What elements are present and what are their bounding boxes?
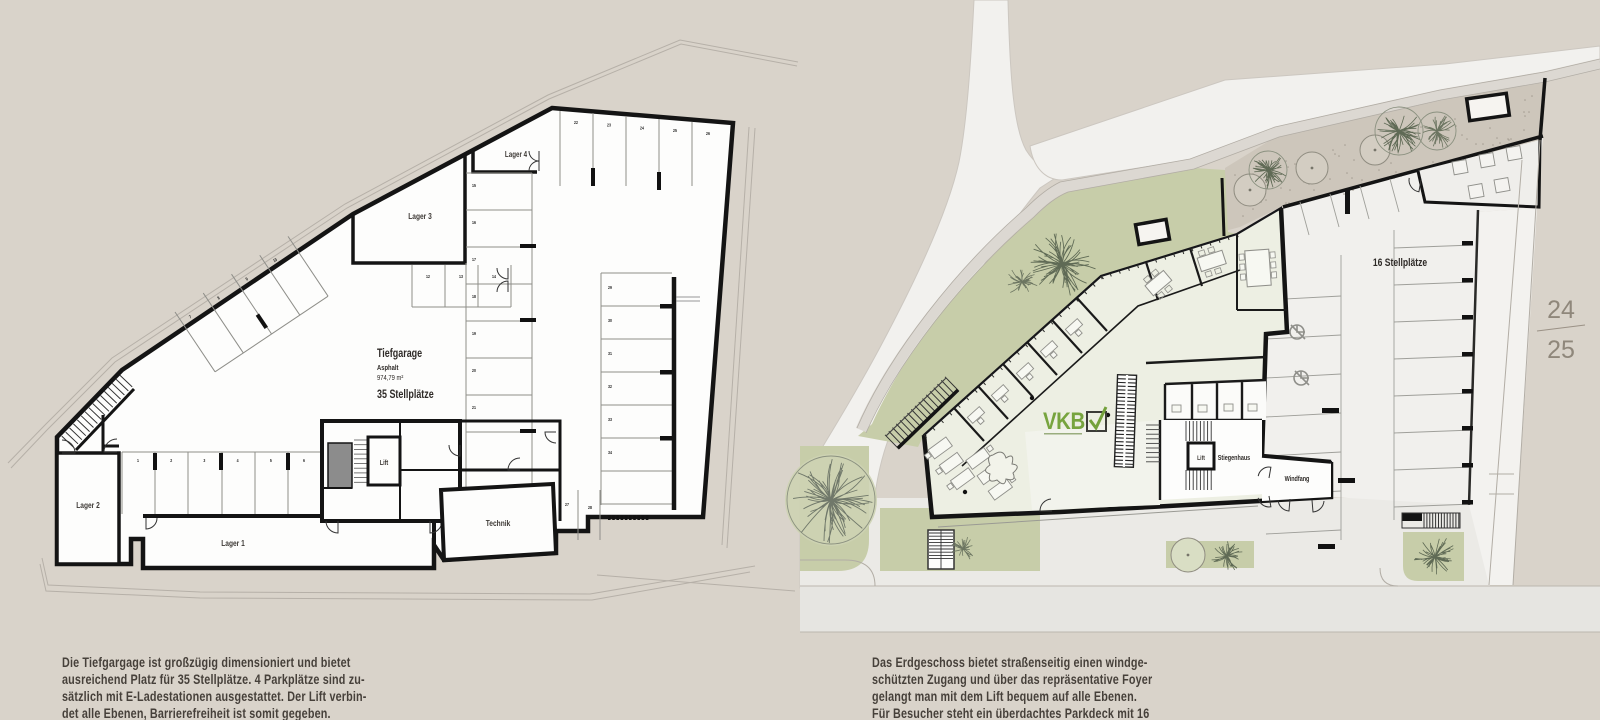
svg-text:Lager 3: Lager 3 xyxy=(408,211,432,221)
svg-text:Für Besucher steht ein überdac: Für Besucher steht ein überdachtes Parkd… xyxy=(872,706,1149,720)
svg-text:14: 14 xyxy=(492,274,497,280)
svg-text:26: 26 xyxy=(706,130,711,136)
svg-text:Lager 1: Lager 1 xyxy=(221,538,245,548)
svg-text:Tiefgarage: Tiefgarage xyxy=(377,348,422,360)
svg-text:Das Erdgeschoss bietet straßen: Das Erdgeschoss bietet straßenseitig ein… xyxy=(872,655,1148,670)
svg-text:13: 13 xyxy=(459,274,464,280)
svg-text:24: 24 xyxy=(1547,296,1575,324)
svg-text:Asphalt: Asphalt xyxy=(377,364,399,372)
svg-text:33: 33 xyxy=(608,417,613,423)
svg-text:18: 18 xyxy=(472,294,477,300)
svg-text:9: 9 xyxy=(244,276,249,282)
svg-text:Lift: Lift xyxy=(1197,456,1205,463)
svg-text:28: 28 xyxy=(588,505,593,511)
svg-text:32: 32 xyxy=(608,384,613,390)
svg-text:det alle Ebenen, Barrierefreih: det alle Ebenen, Barrierefreiheit ist so… xyxy=(62,706,331,720)
svg-text:29: 29 xyxy=(608,285,613,291)
svg-text:8: 8 xyxy=(216,295,221,301)
svg-text:gelangt man mit dem Lift beque: gelangt man mit dem Lift bequem auf alle… xyxy=(872,689,1137,704)
svg-text:25: 25 xyxy=(673,128,678,134)
svg-text:34: 34 xyxy=(608,450,613,456)
svg-text:Lager 4: Lager 4 xyxy=(505,150,527,159)
svg-text:16: 16 xyxy=(472,220,477,226)
svg-text:17: 17 xyxy=(472,257,477,263)
svg-text:Lift: Lift xyxy=(380,459,389,467)
svg-text:22: 22 xyxy=(574,120,579,126)
svg-text:20: 20 xyxy=(472,368,477,374)
svg-text:Lager 2: Lager 2 xyxy=(76,500,100,510)
svg-text:35 Stellplätze: 35 Stellplätze xyxy=(377,389,434,401)
svg-text:VKB: VKB xyxy=(1043,407,1085,434)
svg-text:24: 24 xyxy=(640,125,645,131)
svg-text:23: 23 xyxy=(607,122,612,128)
svg-text:19: 19 xyxy=(472,331,477,337)
svg-text:Stiegenhaus: Stiegenhaus xyxy=(1218,454,1251,462)
svg-text:974,79 m²: 974,79 m² xyxy=(377,374,404,382)
svg-text:schützten Zugang und über das: schützten Zugang und über das repräsenta… xyxy=(872,672,1152,687)
svg-text:25: 25 xyxy=(1547,336,1575,364)
svg-text:21: 21 xyxy=(472,405,477,411)
svg-text:7: 7 xyxy=(188,313,193,319)
svg-text:16 Stellplätze: 16 Stellplätze xyxy=(1373,257,1428,269)
svg-text:12: 12 xyxy=(426,274,431,280)
svg-text:Die Tiefgargage ist großzügig: Die Tiefgargage ist großzügig dimensioni… xyxy=(62,655,351,670)
svg-text:30: 30 xyxy=(608,318,613,324)
svg-text:sätzlich mit E-Ladestationen a: sätzlich mit E-Ladestationen ausgestatte… xyxy=(62,689,367,704)
svg-text:15: 15 xyxy=(472,183,477,189)
svg-text:31: 31 xyxy=(608,351,613,357)
svg-text:Windfang: Windfang xyxy=(1285,475,1310,483)
svg-text:27: 27 xyxy=(565,502,570,508)
svg-text:ausreichend Platz für 35 Stell: ausreichend Platz für 35 Stellplätze. 4 … xyxy=(62,672,365,687)
svg-text:Technik: Technik xyxy=(486,518,511,528)
